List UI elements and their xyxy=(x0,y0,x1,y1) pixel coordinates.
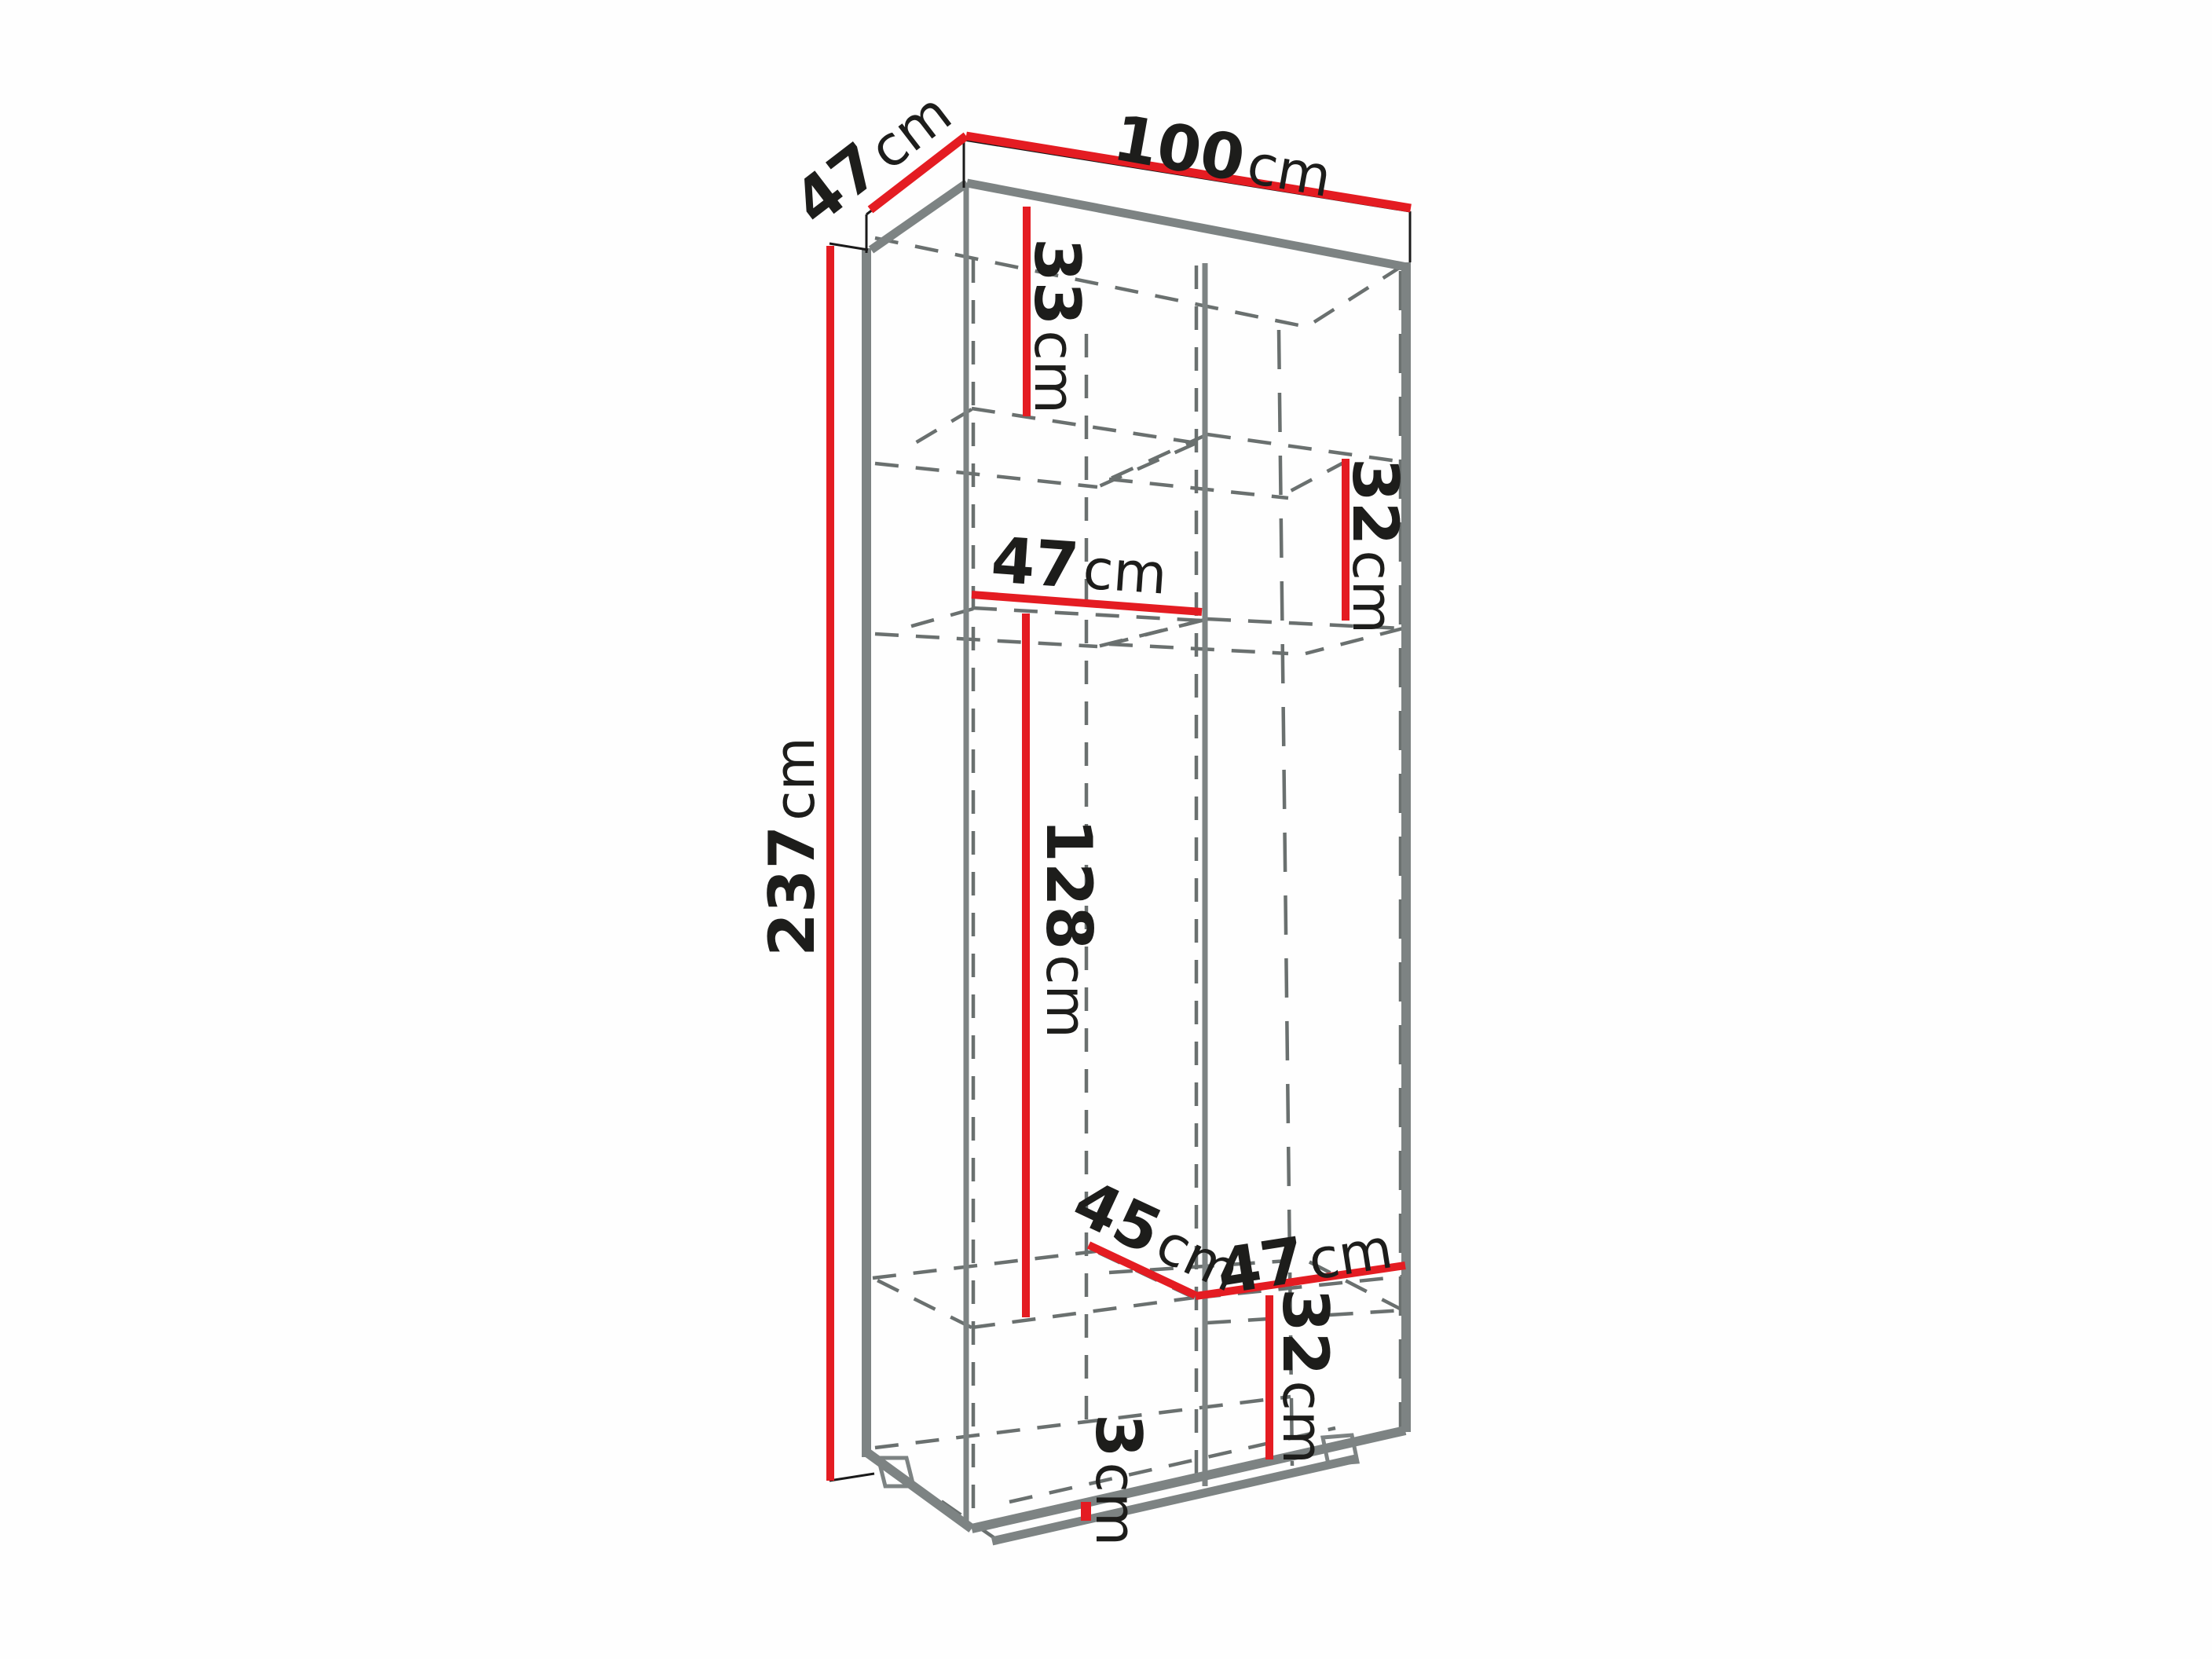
dimension-labels: 47cm 100cm 237cm 33cm 32cm 47cm 128cm 45… xyxy=(756,75,1412,1546)
dim-label-plinth-height: 3cm xyxy=(1082,1414,1155,1546)
wardrobe-dimension-diagram: 47cm 100cm 237cm 33cm 32cm 47cm 128cm 45… xyxy=(0,0,2212,1659)
dim-label-width-top: 100cm xyxy=(1108,101,1338,211)
dim-label-inner-width-left: 47cm xyxy=(989,523,1170,608)
dim-label-hanging-height: 128cm xyxy=(1032,819,1105,1038)
diagram-svg: 47cm 100cm 237cm 33cm 32cm 47cm 128cm 45… xyxy=(0,0,2212,1659)
dim-label-top-shelf-left: 33cm xyxy=(1020,238,1093,414)
dim-label-height-left: 237cm xyxy=(756,737,829,957)
dim-label-bottom-shelf-right: 32cm xyxy=(1269,1288,1342,1464)
